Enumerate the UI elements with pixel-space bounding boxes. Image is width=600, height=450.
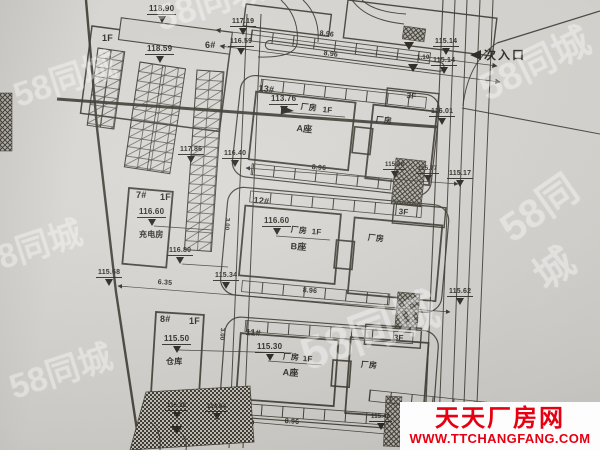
site-plan-drawing (0, 0, 600, 450)
entrance-annotation: 次入口 (470, 46, 526, 63)
parking-row (184, 70, 223, 251)
building-8-outline (151, 312, 204, 401)
hatch-patch (395, 292, 420, 330)
site-boundary-topright (497, 11, 600, 43)
entrance-arrow-icon (470, 50, 481, 60)
hatch-patch (402, 26, 426, 42)
hatch-patch (0, 93, 12, 151)
paved-patch (130, 386, 254, 450)
parking-row (124, 62, 185, 174)
banner-url: WWW.TTCHANGFANG.COM (410, 432, 591, 446)
section-arrow-icon (281, 106, 295, 116)
site-plan-photo: 次入口 118.901F6#118.59117.19116.598.968.96… (0, 0, 600, 450)
hatch-patch (391, 158, 426, 207)
banner-title: 天天厂房网 (435, 406, 565, 431)
building-7-outline (122, 188, 172, 268)
banner: 天天厂房网 WWW.TTCHANGFANG.COM (400, 402, 600, 450)
entrance-label: 次入口 (484, 46, 526, 63)
parking-row (87, 48, 125, 129)
